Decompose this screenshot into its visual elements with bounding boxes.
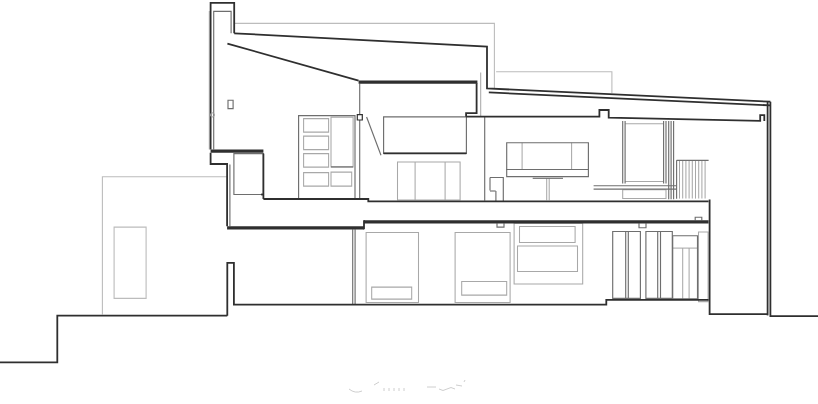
furniture-and-fittings-light (304, 73, 708, 303)
interior-walls-and-frames-mid (214, 11, 709, 304)
slab-bands-heavy (211, 82, 709, 228)
background-building-outlines (102, 11, 612, 315)
section-drawing (0, 0, 818, 404)
section-markers (357, 115, 362, 120)
drawing-sheet (0, 0, 818, 404)
caption-marks (349, 380, 465, 392)
